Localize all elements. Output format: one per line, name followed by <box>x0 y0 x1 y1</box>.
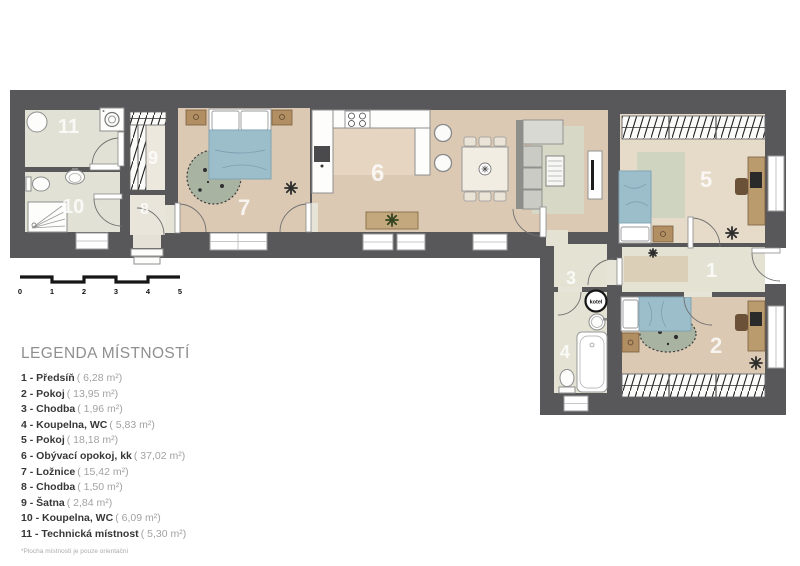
coffee-table <box>546 156 564 186</box>
legend-item: 10 - Koupelna, WC( 6,09 m²) <box>21 511 281 527</box>
chair <box>479 137 491 146</box>
passage-6-to-3 <box>546 230 568 246</box>
desk-chair <box>735 314 748 331</box>
desk-chair <box>735 178 748 195</box>
bar-stool <box>435 155 452 172</box>
boiler-tank <box>27 112 47 132</box>
legend-item-label: 10 - Koupelna, WC <box>21 512 113 524</box>
scale-tick: 4 <box>146 287 151 296</box>
door-leaf <box>94 194 122 199</box>
plant <box>750 357 762 369</box>
legend-item: 3 - Chodba( 1,96 m²) <box>21 402 281 418</box>
kitchen-counter <box>415 128 430 175</box>
boiler-label: kotel <box>590 300 603 306</box>
chair <box>494 137 506 146</box>
room-8-entry <box>131 235 163 264</box>
legend-item-label: 1 - Předsíň <box>21 372 75 384</box>
window <box>397 234 425 250</box>
scale-tick: 2 <box>82 287 86 296</box>
legend-item: 7 - Ložnice( 15,42 m²) <box>21 465 281 481</box>
nightstand <box>622 333 639 352</box>
wardrobe <box>622 374 765 397</box>
legend-list: 1 - Předsíň( 6,28 m²) 2 - Pokoj( 13,95 m… <box>21 371 281 543</box>
chair <box>464 192 476 201</box>
legend-item: 8 - Chodba( 1,50 m²) <box>21 480 281 496</box>
legend-item-area: ( 1,96 m²) <box>77 403 123 415</box>
door-threshold <box>133 235 161 248</box>
legend-item-area: ( 5,30 m²) <box>141 528 187 540</box>
toilet <box>559 370 575 394</box>
legend-item-label: 4 - Koupelna, WC <box>21 419 107 431</box>
legend-item: 9 - Šatna( 2,84 m²) <box>21 496 281 512</box>
toilet <box>26 177 50 191</box>
plant <box>649 249 657 257</box>
legend-item-area: ( 37,02 m²) <box>134 450 185 462</box>
legend-item: 1 - Předsíň( 6,28 m²) <box>21 371 281 387</box>
sideboard <box>366 212 418 229</box>
entrance-door-leaf <box>752 248 780 253</box>
legend-item-area: ( 5,83 m²) <box>109 419 155 431</box>
floor-room-3 <box>554 244 607 287</box>
room-label-11: 11 <box>58 116 79 138</box>
plant <box>285 182 297 194</box>
nightstand <box>272 110 292 125</box>
legend-item: 2 - Pokoj( 13,95 m²) <box>21 387 281 403</box>
legend-item-area: ( 13,95 m²) <box>67 388 118 400</box>
window <box>473 234 507 250</box>
door-leaf <box>306 203 311 232</box>
room-label-3: 3 <box>566 268 576 288</box>
legend-item-label: 11 - Technická místnost <box>21 528 139 540</box>
window <box>768 156 784 211</box>
bathtub <box>577 332 607 392</box>
door-leaf <box>90 164 120 170</box>
room-label-6: 6 <box>371 160 384 187</box>
door-leaf <box>540 207 546 237</box>
nightstand <box>653 226 673 242</box>
door-opening <box>684 292 712 297</box>
legend: LEGENDA MÍSTNOSTÍ 1 - Předsíň( 6,28 m²) … <box>21 345 281 555</box>
scale-bar: 0 1 2 3 4 5 <box>18 277 182 296</box>
window <box>210 233 267 250</box>
scale-tick: 3 <box>114 287 118 296</box>
chair <box>479 192 491 201</box>
plant <box>386 214 398 226</box>
tv <box>588 151 602 199</box>
hall-mat <box>624 256 688 282</box>
room-label-9: 9 <box>148 148 158 168</box>
chair <box>494 192 506 201</box>
double-bed <box>209 109 271 179</box>
legend-item-label: 8 - Chodba <box>21 481 75 493</box>
nightstand <box>186 110 206 125</box>
room-label-10: 10 <box>62 196 84 218</box>
boiler: kotel <box>586 291 607 312</box>
window <box>76 233 108 249</box>
legend-item-area: ( 6,09 m²) <box>115 512 161 524</box>
scale-tick: 1 <box>50 287 54 296</box>
legend-item-label: 6 - Obývací opokoj, kk <box>21 450 132 462</box>
window <box>768 306 784 368</box>
single-bed <box>621 297 691 331</box>
scale-tick: 0 <box>18 287 22 296</box>
legend-item-label: 2 - Pokoj <box>21 388 65 400</box>
legend-item: 5 - Pokoj( 18,18 m²) <box>21 433 281 449</box>
legend-item-label: 5 - Pokoj <box>21 434 65 446</box>
legend-item-label: 3 - Chodba <box>21 403 75 415</box>
single-bed <box>619 171 651 243</box>
legend-item: 6 - Obývací opokoj, kk( 37,02 m²) <box>21 449 281 465</box>
door-leaf <box>118 132 124 166</box>
room-label-7: 7 <box>238 195 250 220</box>
washing-machine <box>100 108 124 131</box>
legend-item-area: ( 6,28 m²) <box>77 372 123 384</box>
chair <box>464 137 476 146</box>
stove <box>345 111 370 128</box>
bar-stool <box>435 125 452 142</box>
door-leaf <box>175 203 180 233</box>
window <box>564 396 588 411</box>
legend-item-label: 7 - Ložnice <box>21 466 75 478</box>
room-label-2: 2 <box>710 333 722 358</box>
floor-plan-page: kotel <box>0 0 800 566</box>
legend-item-area: ( 2,84 m²) <box>67 497 113 509</box>
scale-tick: 5 <box>178 287 182 296</box>
legend-item: 11 - Technická místnost( 5,30 m²) <box>21 527 281 543</box>
room-label-5: 5 <box>700 167 712 192</box>
legend-item-area: ( 15,42 m²) <box>77 466 128 478</box>
legend-title: LEGENDA MÍSTNOSTÍ <box>21 345 281 363</box>
legend-item: 4 - Koupelna, WC( 5,83 m²) <box>21 418 281 434</box>
door-leaf <box>617 258 622 285</box>
room-label-4: 4 <box>560 342 570 362</box>
room-label-1: 1 <box>706 260 717 282</box>
scale-bar-line <box>20 277 180 282</box>
entry-step <box>134 257 160 264</box>
entry-step <box>131 249 163 256</box>
legend-item-area: ( 18,18 m²) <box>67 434 118 446</box>
door-leaf <box>688 217 693 248</box>
plant <box>726 227 738 239</box>
legend-item-label: 9 - Šatna <box>21 497 65 509</box>
room-1-furniture <box>649 249 657 257</box>
window <box>363 234 393 250</box>
legend-footnote: *Plocha místností je pouze orientační <box>21 548 281 555</box>
wardrobe <box>622 116 765 139</box>
legend-item-area: ( 1,50 m²) <box>77 481 123 493</box>
room-label-8: 8 <box>140 201 149 218</box>
